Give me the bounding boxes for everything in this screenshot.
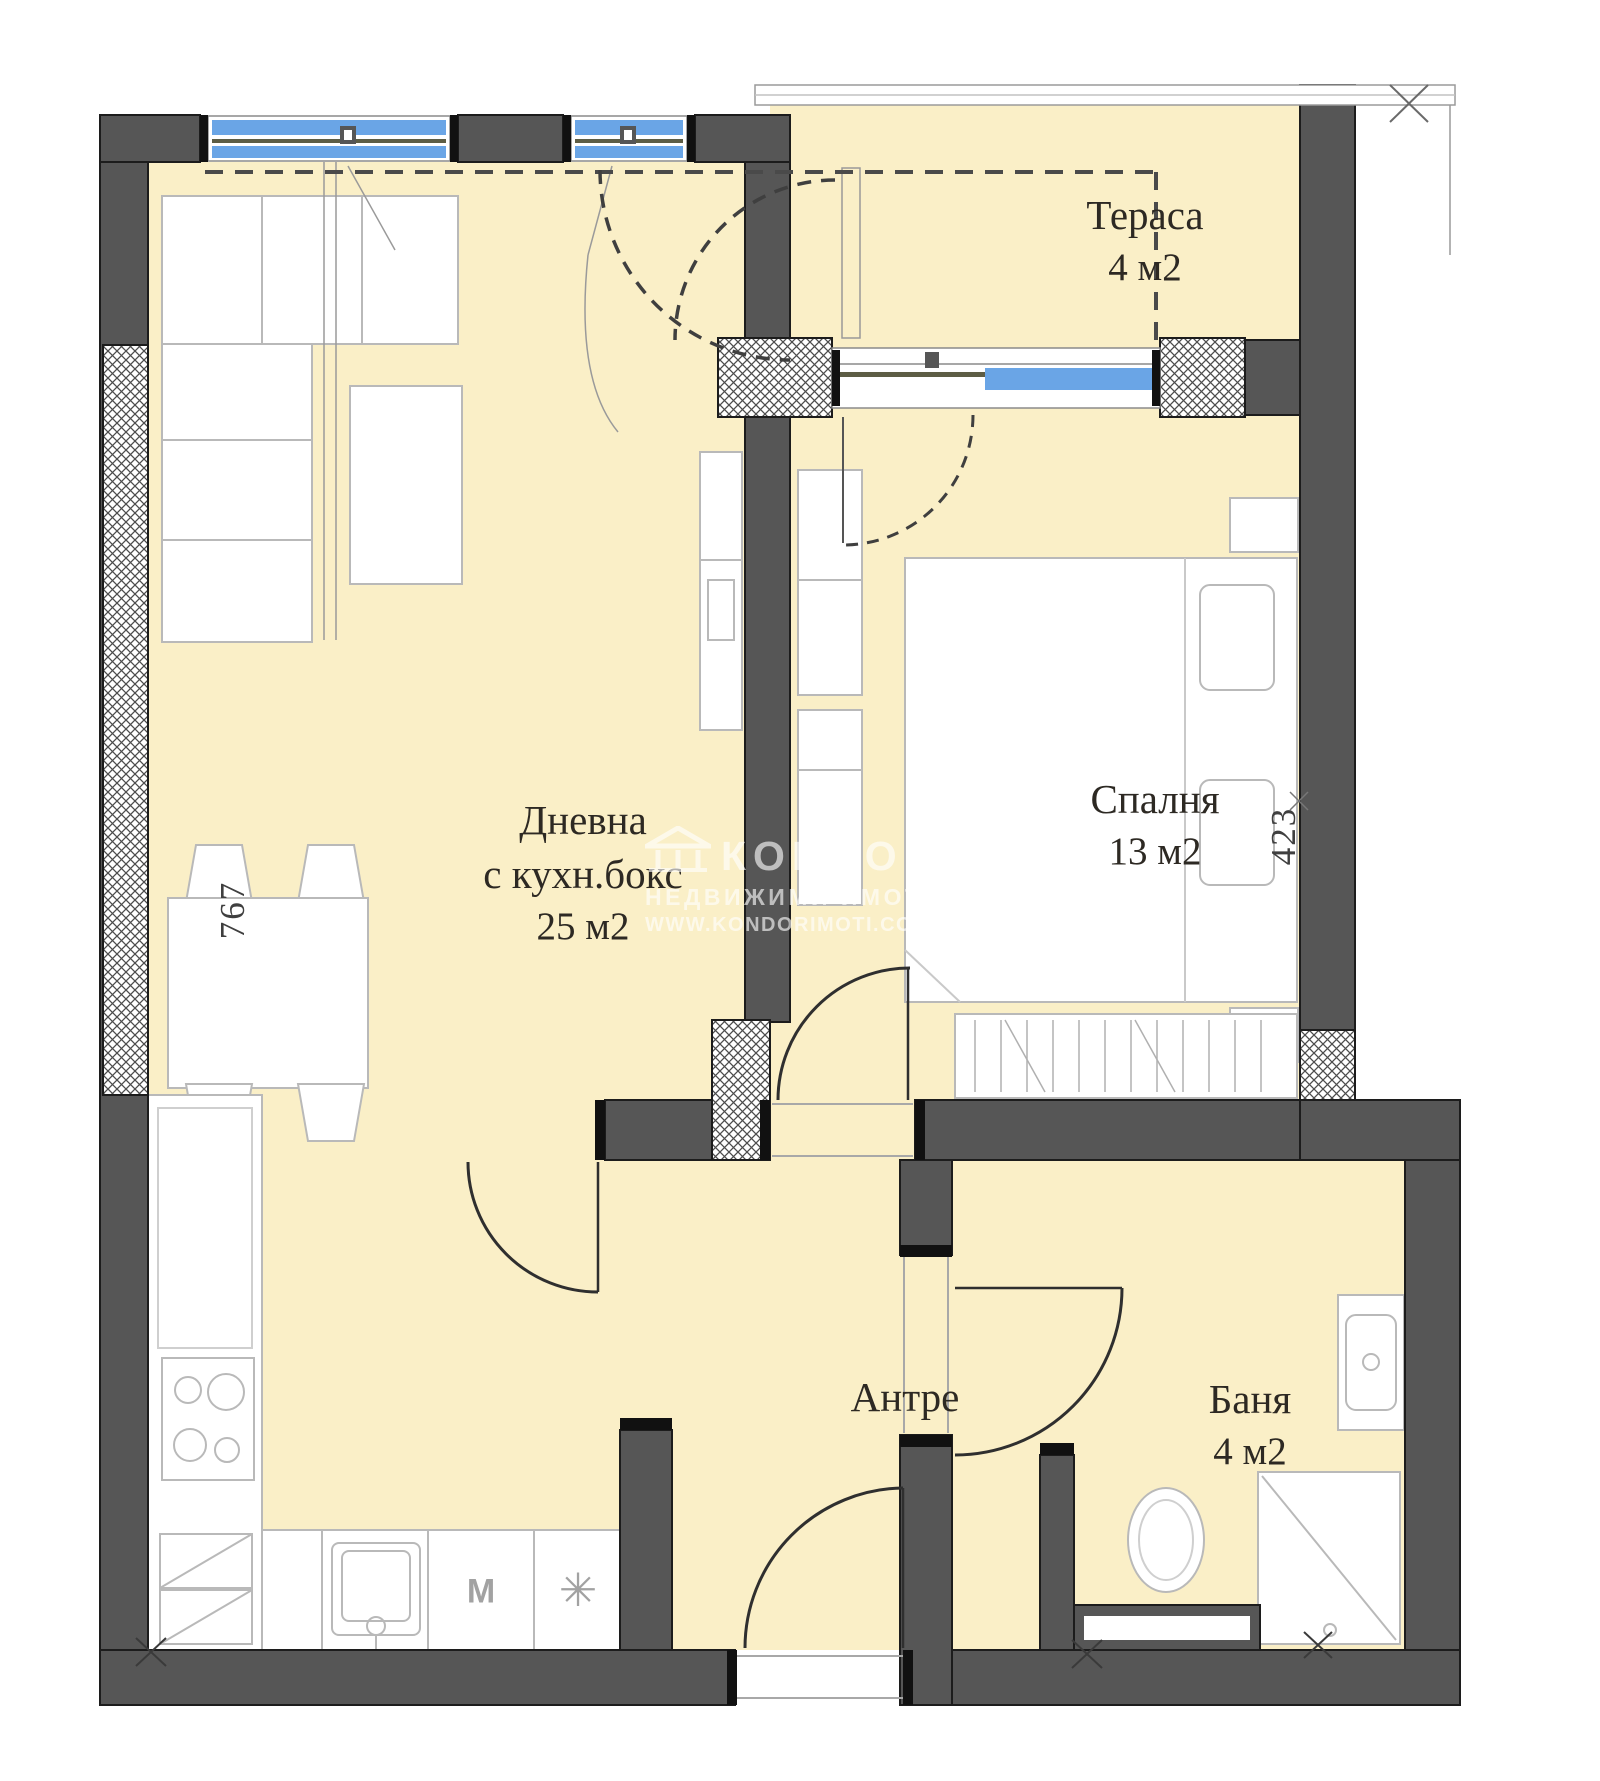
bedroom-name: Спалня (1090, 772, 1219, 826)
wall-top (100, 115, 200, 162)
freezer-symbol: ✳ (559, 1563, 598, 1617)
house-logo-icon (645, 826, 711, 877)
fridge (160, 1534, 252, 1644)
wall-hall-top-a (605, 1100, 715, 1160)
bathroom-sink (1338, 1295, 1404, 1430)
watermark-tagline: НЕДВИЖИМИ ИМОТИ (645, 884, 943, 911)
wall-bottom-left (100, 1650, 735, 1705)
watermark-brand: КОНДОР (721, 836, 938, 877)
toilet (1128, 1488, 1204, 1592)
window-bedroom (832, 348, 1160, 408)
bathroom-name: Баня (1209, 1372, 1292, 1426)
bathroom-label: Баня 4 м2 (1209, 1372, 1292, 1478)
wall-right-upper (1300, 85, 1355, 1160)
wall-step (1300, 1100, 1460, 1160)
wall-kitchen-stub (620, 1430, 672, 1650)
wall-hall-bath-upper (900, 1160, 952, 1255)
wall-bottom-right (905, 1650, 1460, 1705)
bathroom-area: 4 м2 (1209, 1426, 1292, 1477)
hallway-name: Антре (851, 1370, 960, 1424)
bedroom-area: 13 м2 (1090, 826, 1219, 877)
wall-window-right-seg (1245, 340, 1300, 415)
dimension-767: 767 (213, 881, 253, 940)
nightstand (1230, 498, 1298, 552)
hallway-label: Антре (851, 1370, 960, 1424)
bath-curb-inner (1084, 1616, 1250, 1640)
wall-hall-top-b (915, 1100, 1300, 1160)
wall-top-right (695, 115, 790, 162)
kitchen-left-counter (148, 1095, 262, 1650)
terrace-name: Тераса (1086, 188, 1203, 242)
window-living-1 (208, 116, 450, 161)
terrace-label: Тераса 4 м2 (1086, 188, 1203, 294)
shower-cabin (1258, 1472, 1400, 1644)
watermark-website: WWW.KONDORIMOTI.COM (645, 914, 943, 937)
wall-right-lower (1405, 1160, 1460, 1705)
floor-plan-canvas: Тераса 4 м2 Дневна с кухн.бокс 25 м2 Спа… (0, 0, 1600, 1781)
terrace-area: 4 м2 (1086, 242, 1203, 293)
stove (162, 1358, 254, 1480)
bedroom-label: Спалня 13 м2 (1090, 772, 1219, 878)
wall-top-pillar (458, 115, 563, 162)
kitchen-sink (332, 1543, 420, 1650)
watermark: КОНДОР НЕДВИЖИМИ ИМОТИ WWW.KONDORIMOTI.C… (645, 826, 943, 937)
window-living-2 (571, 116, 687, 161)
pillow (1200, 585, 1274, 690)
coffee-table (350, 386, 462, 584)
wall-bath-stub (1040, 1455, 1074, 1650)
shelf (700, 452, 742, 730)
washing-machine-symbol: M (467, 1573, 495, 1612)
dimension-423: 423 (1264, 807, 1304, 866)
wardrobe (955, 1014, 1297, 1098)
